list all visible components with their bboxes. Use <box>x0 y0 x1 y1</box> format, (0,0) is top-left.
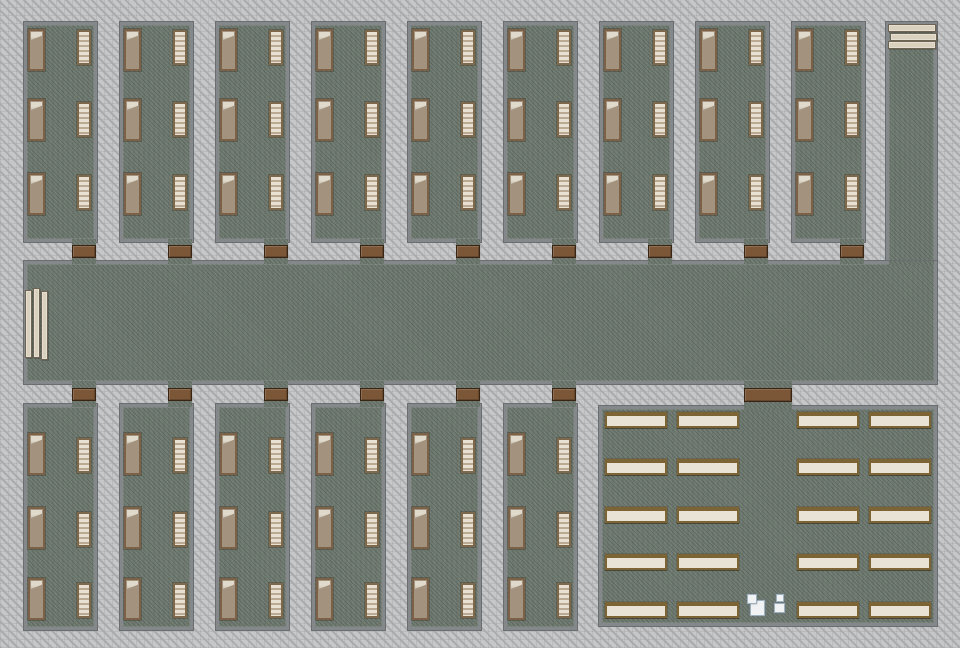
door-icon[interactable] <box>264 245 288 258</box>
door-icon[interactable] <box>840 245 864 258</box>
bed-icon[interactable] <box>796 173 813 215</box>
bed-icon[interactable] <box>700 99 717 141</box>
table-icon[interactable] <box>677 554 739 570</box>
table-icon[interactable] <box>797 459 859 475</box>
bed-icon[interactable] <box>508 433 525 475</box>
door-icon[interactable] <box>456 245 480 258</box>
shelf-icon[interactable] <box>269 438 283 473</box>
bed-icon[interactable] <box>28 507 45 549</box>
bed-icon[interactable] <box>220 99 237 141</box>
door-icon[interactable] <box>360 388 384 401</box>
corridor-bench[interactable] <box>888 41 936 49</box>
bed-icon[interactable] <box>28 173 45 215</box>
corridor-bench[interactable] <box>890 33 937 41</box>
corridor-junction-floor <box>889 261 934 265</box>
shelf-icon[interactable] <box>269 175 283 210</box>
table-icon[interactable] <box>797 412 859 428</box>
bed-icon[interactable] <box>604 173 621 215</box>
shelf-icon[interactable] <box>365 175 379 210</box>
shelf-icon[interactable] <box>557 102 571 137</box>
table-icon[interactable] <box>605 459 667 475</box>
shelf-icon[interactable] <box>557 30 571 65</box>
bed-icon[interactable] <box>220 433 237 475</box>
shelf-icon[interactable] <box>653 102 667 137</box>
bed-icon[interactable] <box>412 173 429 215</box>
bed-icon[interactable] <box>508 99 525 141</box>
bed-icon[interactable] <box>508 578 525 620</box>
door-icon[interactable] <box>744 245 768 258</box>
shelf-icon[interactable] <box>77 583 91 618</box>
bed-icon[interactable] <box>412 29 429 71</box>
door-icon[interactable] <box>456 388 480 401</box>
table-icon[interactable] <box>797 554 859 570</box>
shelf-icon[interactable] <box>365 102 379 137</box>
sink-icon[interactable] <box>774 603 785 613</box>
bed-icon[interactable] <box>220 578 237 620</box>
bed-icon[interactable] <box>316 29 333 71</box>
shelf-icon[interactable] <box>77 30 91 65</box>
bed-icon[interactable] <box>412 578 429 620</box>
bed-icon[interactable] <box>508 507 525 549</box>
bed-icon[interactable] <box>796 99 813 141</box>
sink-basin-icon <box>776 594 784 602</box>
shelf-icon[interactable] <box>461 175 475 210</box>
floorplan-canvas <box>0 0 960 648</box>
bed-icon[interactable] <box>124 507 141 549</box>
door-icon[interactable] <box>648 245 672 258</box>
shelf-icon[interactable] <box>461 583 475 618</box>
shelf-icon[interactable] <box>77 102 91 137</box>
door-icon[interactable] <box>552 245 576 258</box>
door-icon[interactable] <box>264 388 288 401</box>
shelf-icon[interactable] <box>845 102 859 137</box>
bed-icon[interactable] <box>316 173 333 215</box>
bed-icon[interactable] <box>700 173 717 215</box>
bed-icon[interactable] <box>220 29 237 71</box>
bed-icon[interactable] <box>124 173 141 215</box>
bed-icon[interactable] <box>124 29 141 71</box>
shelf-icon[interactable] <box>557 512 571 547</box>
table-icon[interactable] <box>677 602 739 618</box>
shelf-icon[interactable] <box>749 102 763 137</box>
shelf-icon[interactable] <box>173 102 187 137</box>
shelf-icon[interactable] <box>557 583 571 618</box>
canteen-door-icon[interactable] <box>744 388 792 402</box>
shelf-icon[interactable] <box>173 512 187 547</box>
table-icon[interactable] <box>677 412 739 428</box>
bed-icon[interactable] <box>220 507 237 549</box>
shelf-icon[interactable] <box>557 175 571 210</box>
table-icon[interactable] <box>605 554 667 570</box>
bed-icon[interactable] <box>28 578 45 620</box>
door-icon[interactable] <box>168 245 192 258</box>
door-icon[interactable] <box>72 245 96 258</box>
bed-icon[interactable] <box>604 99 621 141</box>
bed-icon[interactable] <box>316 433 333 475</box>
door-icon[interactable] <box>360 245 384 258</box>
table-icon[interactable] <box>869 602 931 618</box>
bed-icon[interactable] <box>508 173 525 215</box>
bed-icon[interactable] <box>28 99 45 141</box>
bed-icon[interactable] <box>604 29 621 71</box>
shelf-icon[interactable] <box>173 438 187 473</box>
table-icon[interactable] <box>677 507 739 523</box>
table-icon[interactable] <box>797 602 859 618</box>
bed-icon[interactable] <box>412 507 429 549</box>
table-icon[interactable] <box>869 554 931 570</box>
bed-icon[interactable] <box>316 99 333 141</box>
bed-icon[interactable] <box>124 433 141 475</box>
shelf-icon[interactable] <box>461 512 475 547</box>
shelf-icon[interactable] <box>365 30 379 65</box>
bed-icon[interactable] <box>700 29 717 71</box>
shelf-icon[interactable] <box>749 175 763 210</box>
bed-icon[interactable] <box>412 99 429 141</box>
table-icon[interactable] <box>605 412 667 428</box>
shelf-icon[interactable] <box>77 175 91 210</box>
bed-icon[interactable] <box>412 433 429 475</box>
table-icon[interactable] <box>797 507 859 523</box>
shelf-icon[interactable] <box>653 30 667 65</box>
shelf-icon[interactable] <box>77 512 91 547</box>
table-icon[interactable] <box>869 412 931 428</box>
shelf-icon[interactable] <box>365 583 379 618</box>
door-icon[interactable] <box>72 388 96 401</box>
shelf-icon[interactable] <box>461 30 475 65</box>
door-icon[interactable] <box>552 388 576 401</box>
shelf-icon[interactable] <box>749 30 763 65</box>
bed-icon[interactable] <box>316 507 333 549</box>
shelf-icon[interactable] <box>557 438 571 473</box>
bed-icon[interactable] <box>796 29 813 71</box>
shelf-icon[interactable] <box>173 583 187 618</box>
bed-icon[interactable] <box>28 29 45 71</box>
sink-basin-icon <box>747 594 757 604</box>
shelf-icon[interactable] <box>845 175 859 210</box>
main-corridor-floor <box>24 261 937 384</box>
table-icon[interactable] <box>677 459 739 475</box>
shelf-icon[interactable] <box>365 438 379 473</box>
shelf-icon[interactable] <box>461 102 475 137</box>
table-icon[interactable] <box>605 507 667 523</box>
shelf-icon[interactable] <box>269 583 283 618</box>
table-icon[interactable] <box>869 507 931 523</box>
corridor-bench[interactable] <box>33 288 40 358</box>
shelf-icon[interactable] <box>77 438 91 473</box>
shelf-icon[interactable] <box>845 30 859 65</box>
shelf-icon[interactable] <box>173 30 187 65</box>
shelf-icon[interactable] <box>269 30 283 65</box>
shelf-icon[interactable] <box>653 175 667 210</box>
corridor-bench[interactable] <box>25 290 32 358</box>
bed-icon[interactable] <box>508 29 525 71</box>
shelf-icon[interactable] <box>173 175 187 210</box>
bed-icon[interactable] <box>124 578 141 620</box>
table-icon[interactable] <box>605 602 667 618</box>
bed-icon[interactable] <box>220 173 237 215</box>
bed-icon[interactable] <box>124 99 141 141</box>
corridor-bench[interactable] <box>41 291 48 360</box>
corridor-bench[interactable] <box>888 24 936 32</box>
shelf-icon[interactable] <box>365 512 379 547</box>
bed-icon[interactable] <box>316 578 333 620</box>
door-icon[interactable] <box>168 388 192 401</box>
bed-icon[interactable] <box>28 433 45 475</box>
shelf-icon[interactable] <box>269 512 283 547</box>
table-icon[interactable] <box>869 459 931 475</box>
shelf-icon[interactable] <box>461 438 475 473</box>
shelf-icon[interactable] <box>269 102 283 137</box>
